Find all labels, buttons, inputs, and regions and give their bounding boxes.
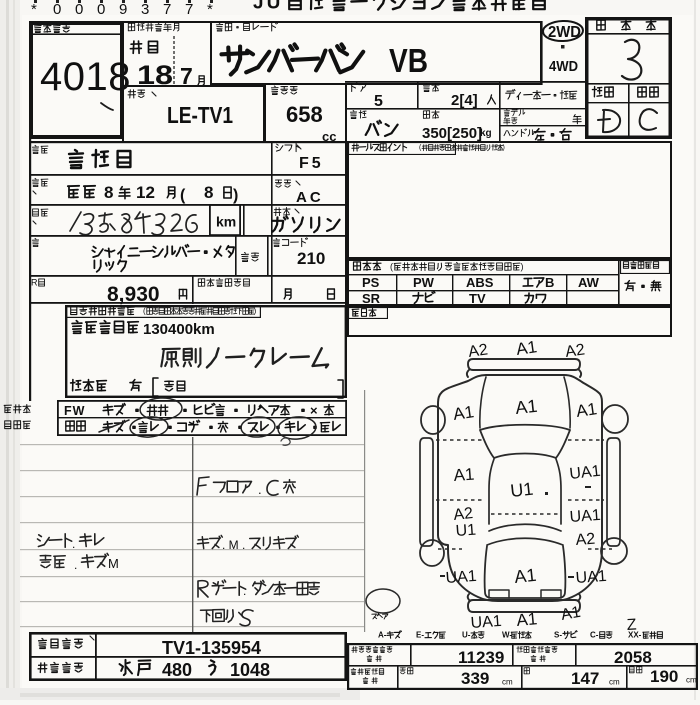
svg-text:(: ( xyxy=(390,261,393,271)
svg-text:11239: 11239 xyxy=(458,648,504,667)
svg-text:U-: U- xyxy=(462,631,471,640)
svg-text:130400km: 130400km xyxy=(143,321,215,338)
svg-text:0: 0 xyxy=(97,1,105,18)
svg-text:UA1: UA1 xyxy=(575,568,607,587)
svg-text:FW: FW xyxy=(64,404,85,418)
svg-text:A1: A1 xyxy=(575,399,598,421)
svg-text:(: ( xyxy=(180,187,186,204)
svg-text:7: 7 xyxy=(163,1,171,18)
svg-text:. M .: . M . xyxy=(222,538,245,552)
svg-text:.: . xyxy=(72,537,75,551)
svg-text:UA1: UA1 xyxy=(569,507,601,526)
svg-text:R: R xyxy=(31,277,38,287)
svg-text:12: 12 xyxy=(136,183,155,202)
svg-text:9: 9 xyxy=(119,1,127,18)
svg-text:LE-TV1: LE-TV1 xyxy=(167,102,233,128)
svg-text:S-: S- xyxy=(554,631,562,640)
svg-text:JU: JU xyxy=(253,0,283,14)
svg-text:A1: A1 xyxy=(560,604,582,624)
svg-text:SR: SR xyxy=(362,291,381,306)
svg-text:M: M xyxy=(108,556,119,571)
svg-text:A1: A1 xyxy=(514,396,538,418)
svg-text:E-: E- xyxy=(416,631,424,640)
svg-text:4018: 4018 xyxy=(40,55,131,99)
svg-text:.: . xyxy=(74,558,77,572)
svg-text:VB: VB xyxy=(389,42,428,79)
svg-text:3: 3 xyxy=(141,1,149,18)
svg-text:×: × xyxy=(310,403,318,418)
svg-text:km: km xyxy=(216,214,236,230)
svg-text:B: B xyxy=(545,275,554,290)
svg-text:PW: PW xyxy=(413,275,435,290)
svg-text:(: ( xyxy=(143,307,146,316)
svg-text:): ) xyxy=(254,307,257,316)
svg-text:0: 0 xyxy=(75,1,83,18)
svg-text:ABS: ABS xyxy=(466,275,494,290)
svg-text:A2: A2 xyxy=(467,341,489,361)
svg-text:658: 658 xyxy=(286,102,323,127)
svg-text:A2: A2 xyxy=(575,531,596,549)
svg-text:5: 5 xyxy=(374,93,383,110)
svg-text:): ) xyxy=(521,261,524,271)
svg-text:): ) xyxy=(233,187,238,204)
svg-text:PS: PS xyxy=(362,275,380,290)
svg-text:AW: AW xyxy=(578,275,600,290)
svg-text:U1: U1 xyxy=(509,479,534,501)
svg-text:A1: A1 xyxy=(513,565,537,587)
svg-text:C-: C- xyxy=(590,631,599,640)
svg-text:kg: kg xyxy=(480,128,492,139)
svg-text:F5: F5 xyxy=(299,155,324,172)
svg-text:1048: 1048 xyxy=(230,660,270,680)
svg-text:480: 480 xyxy=(162,660,192,680)
svg-text:A1: A1 xyxy=(453,465,475,485)
svg-text:UA1: UA1 xyxy=(569,463,602,483)
svg-text:A1: A1 xyxy=(516,609,538,630)
svg-text:cm: cm xyxy=(686,676,697,685)
svg-text:XX-: XX- xyxy=(628,631,642,640)
svg-text:190: 190 xyxy=(650,667,678,686)
svg-text:A1: A1 xyxy=(452,402,475,424)
svg-text:8: 8 xyxy=(104,183,113,202)
svg-text:147: 147 xyxy=(571,669,599,688)
svg-text:TV: TV xyxy=(469,291,486,306)
svg-text:*: * xyxy=(31,1,37,18)
svg-text:210: 210 xyxy=(297,249,325,268)
svg-text:TV1-135954: TV1-135954 xyxy=(162,638,261,658)
svg-text:0: 0 xyxy=(53,1,61,18)
svg-text:*: * xyxy=(207,1,213,18)
svg-text:A2: A2 xyxy=(564,341,586,361)
svg-text:): ) xyxy=(503,145,505,152)
svg-text:2058: 2058 xyxy=(614,648,652,667)
svg-text:A1: A1 xyxy=(515,337,538,359)
svg-text:7: 7 xyxy=(185,1,193,18)
svg-text:4WD: 4WD xyxy=(549,59,578,75)
svg-text:UA1: UA1 xyxy=(445,568,477,587)
svg-text:2[4]: 2[4] xyxy=(451,92,478,109)
svg-text:339: 339 xyxy=(461,669,489,688)
svg-text:U1: U1 xyxy=(455,522,477,540)
svg-text:UA1: UA1 xyxy=(470,613,502,632)
svg-text:.: . xyxy=(243,584,246,598)
svg-text:cm: cm xyxy=(609,678,620,687)
svg-text:.: . xyxy=(258,482,262,497)
svg-text:350[250]: 350[250] xyxy=(422,125,482,142)
svg-text:cm: cm xyxy=(502,678,513,687)
svg-text:AC: AC xyxy=(296,189,324,206)
svg-text:8: 8 xyxy=(204,183,213,202)
svg-text:A-: A- xyxy=(378,631,387,640)
